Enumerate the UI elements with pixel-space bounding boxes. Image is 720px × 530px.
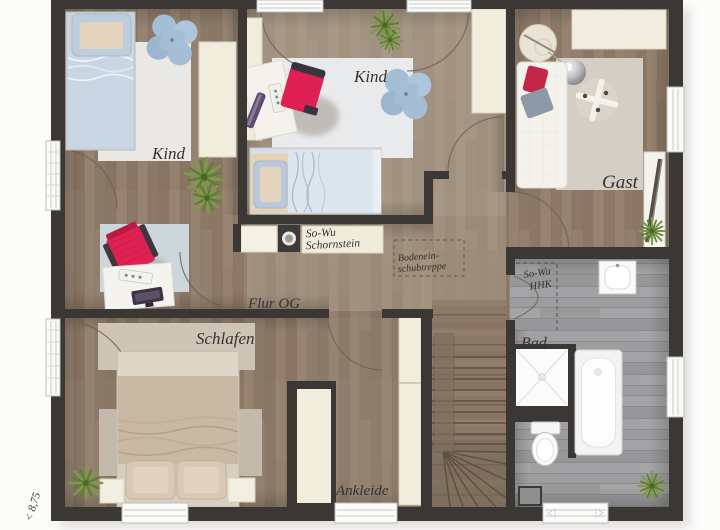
svg-text:Kind: Kind <box>151 144 186 163</box>
svg-text:Bad: Bad <box>521 335 548 352</box>
svg-text:Kind: Kind <box>353 67 388 86</box>
svg-text:Schlafen: Schlafen <box>196 329 255 348</box>
svg-text:Ankleide: Ankleide <box>335 483 389 499</box>
svg-text:Gast: Gast <box>602 172 639 193</box>
